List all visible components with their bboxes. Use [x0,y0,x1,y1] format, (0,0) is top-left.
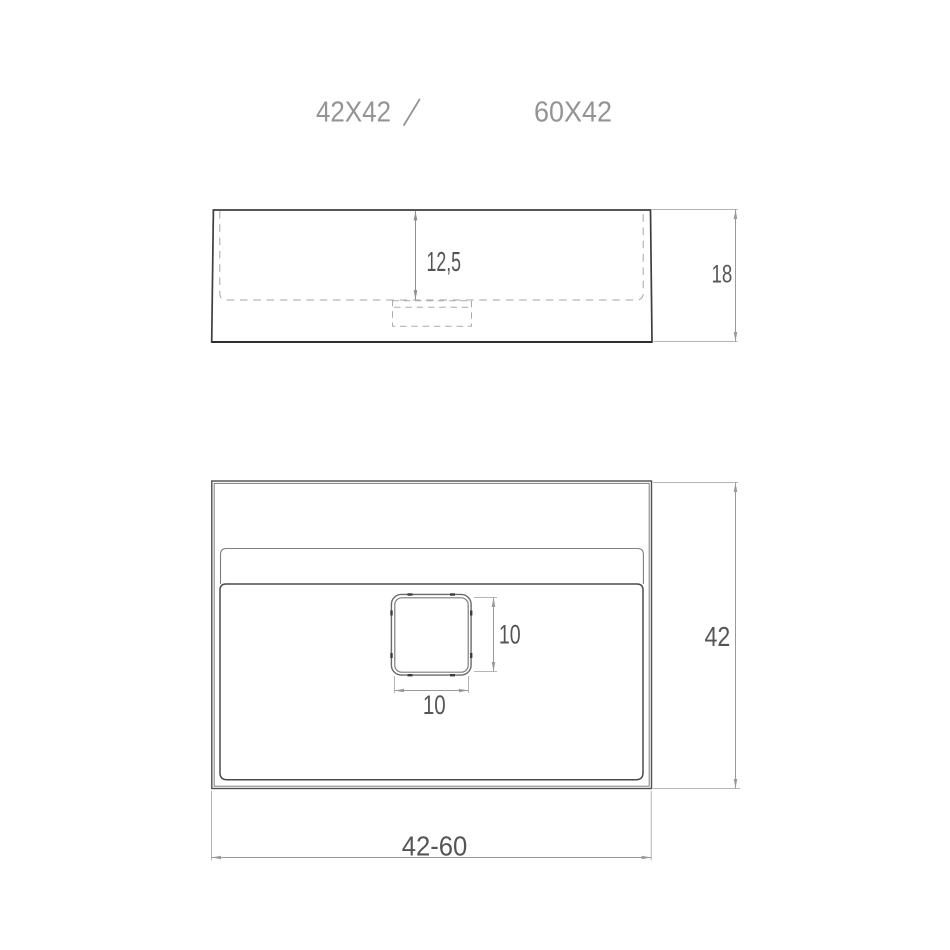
svg-text:18: 18 [712,261,733,289]
svg-text:42: 42 [705,621,731,652]
svg-text:10: 10 [423,690,446,720]
svg-text:60X42: 60X42 [534,97,612,129]
svg-text:42-60: 42-60 [402,830,468,861]
svg-text:10: 10 [499,620,521,650]
svg-text:42X42: 42X42 [316,97,391,129]
svg-text:12,5: 12,5 [427,246,462,277]
